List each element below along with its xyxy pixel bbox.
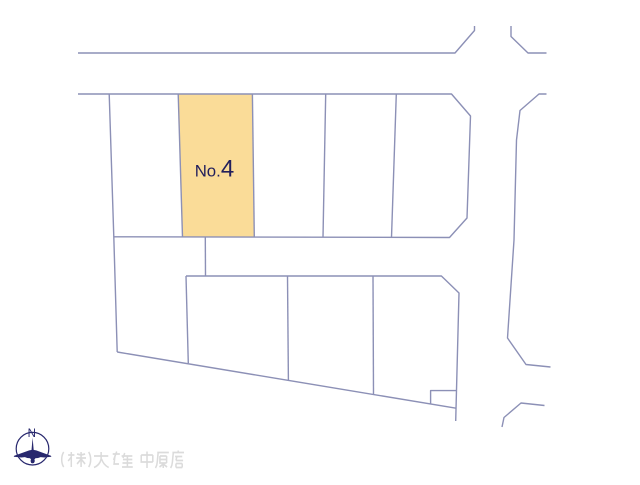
svg-text:N: N (28, 428, 36, 440)
